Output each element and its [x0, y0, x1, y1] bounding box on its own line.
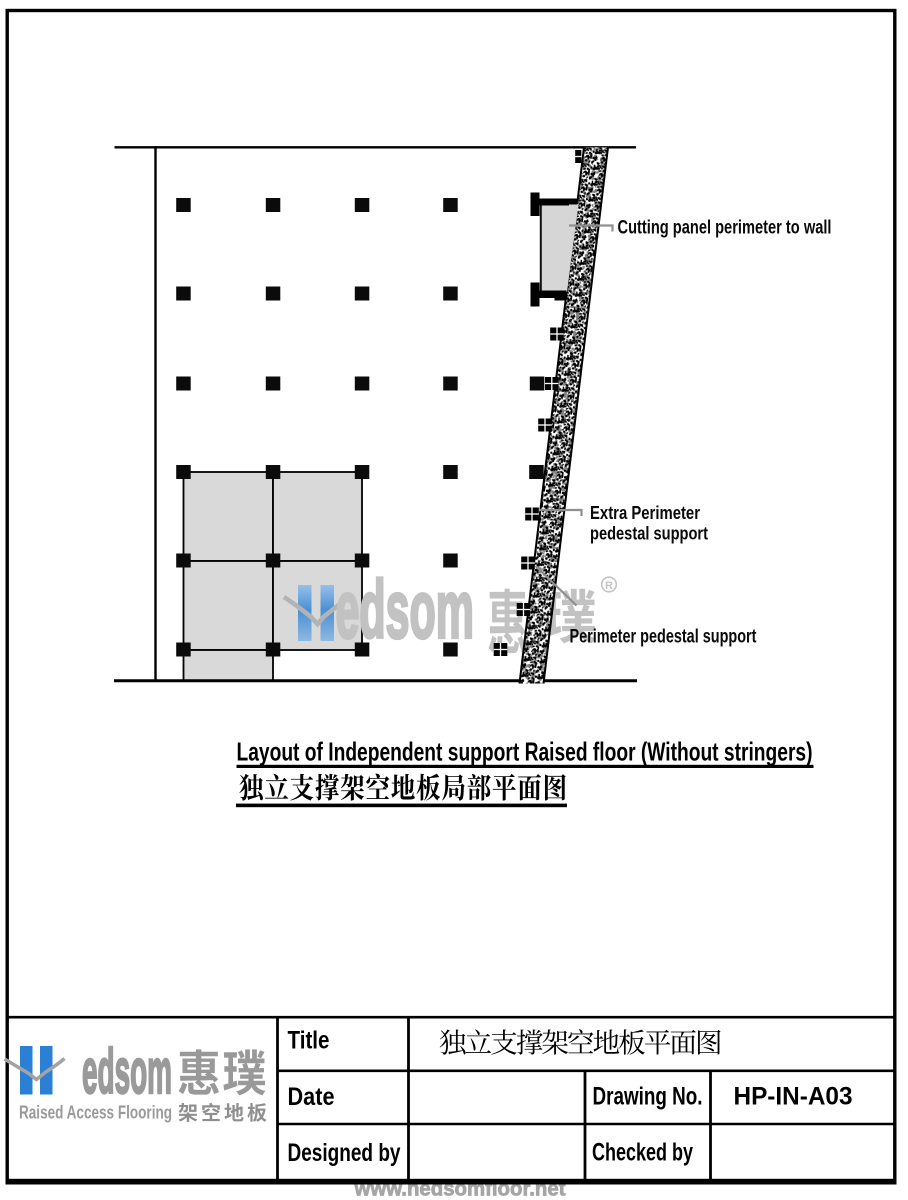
svg-text:Raised Access Flooring: Raised Access Flooring	[19, 1103, 172, 1123]
svg-text:edsom: edsom	[82, 1036, 172, 1107]
svg-text:HP-IN-A03: HP-IN-A03	[734, 1083, 853, 1111]
svg-text:R: R	[605, 580, 613, 592]
svg-text:Perimeter pedestal support: Perimeter pedestal support	[570, 627, 758, 648]
svg-text:pedestal support: pedestal support	[590, 523, 708, 544]
svg-text:Designed by: Designed by	[288, 1139, 401, 1167]
svg-text:edsom: edsom	[336, 563, 475, 655]
svg-text:Extra Perimeter: Extra Perimeter	[590, 502, 700, 523]
svg-text:Checked by: Checked by	[592, 1139, 693, 1167]
svg-text:Date: Date	[288, 1083, 335, 1111]
svg-text:Layout of Independent support: Layout of Independent support Raised flo…	[237, 737, 813, 767]
svg-text:Drawing No.: Drawing No.	[593, 1083, 703, 1111]
svg-text:Cutting panel perimeter to wal: Cutting panel perimeter to wall	[618, 218, 832, 239]
svg-text:Title: Title	[288, 1027, 330, 1055]
